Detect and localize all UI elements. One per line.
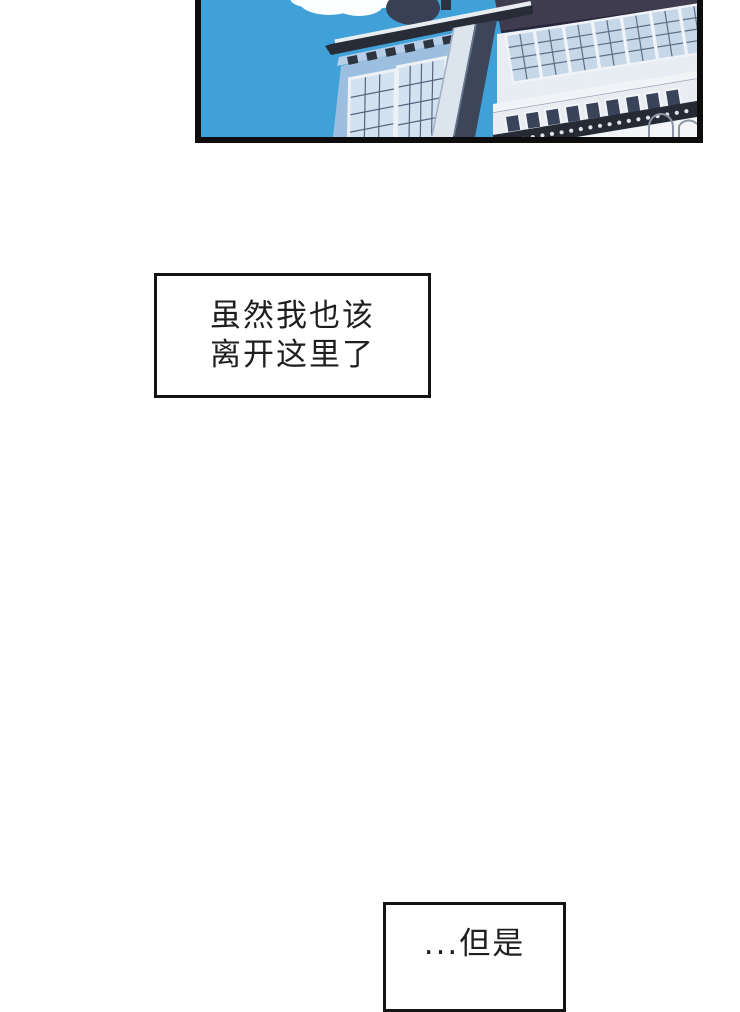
speech-box-bottom: ...但是 (383, 902, 566, 1012)
speech-text-line: 虽然我也该 (210, 297, 375, 336)
speech-box-top: 虽然我也该 离开这里了 (154, 273, 431, 398)
building-right (493, 0, 697, 137)
window-grid-a (346, 68, 397, 137)
comic-panel (195, 0, 703, 143)
comic-page: 虽然我也该 离开这里了 ...但是 (0, 0, 740, 965)
speech-text-line: ...但是 (424, 925, 526, 964)
building-illustration (201, 0, 697, 137)
speech-text-line: 离开这里了 (210, 336, 375, 375)
